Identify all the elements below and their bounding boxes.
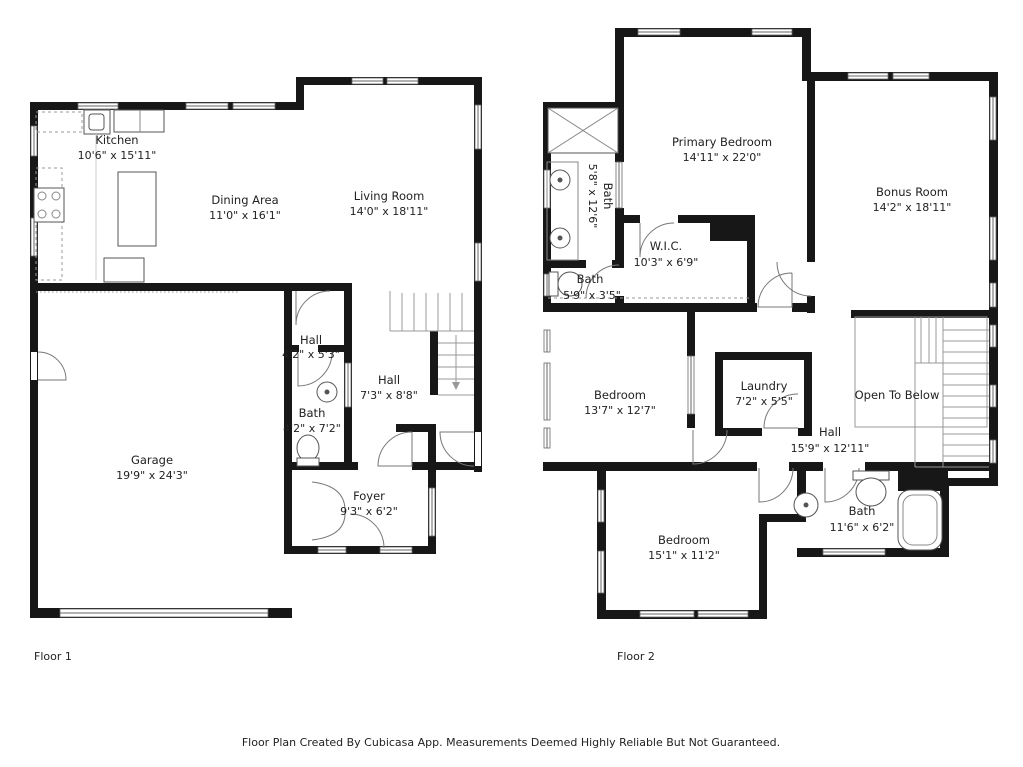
floor2-plan: Primary Bedroom 14'11" x 22'0" Bath 5'8"… [543, 28, 998, 619]
floor1-doors [38, 291, 474, 548]
room-label-hall1: Hall [378, 373, 400, 387]
room-label-hall2: Hall [819, 425, 841, 439]
room-dims-bath-small: 5'9" x 3'5" [563, 289, 621, 302]
kitchen-sink-icon [89, 114, 104, 130]
floor2-fixtures [547, 108, 942, 550]
room-label-bedroom2: Bedroom [658, 533, 710, 547]
room-dims-primary: 14'11" x 22'0" [683, 151, 762, 164]
toilet-icon [297, 435, 319, 461]
room-dims-foyer: 9'3" x 6'2" [340, 505, 398, 518]
floor1-label: Floor 1 [34, 650, 72, 663]
room-label-kitchen: Kitchen [95, 133, 138, 147]
room-dims-bath-hall: 11'6" x 6'2" [830, 521, 895, 534]
room-label-dining: Dining Area [211, 193, 278, 207]
room-label-open-below: Open To Below [855, 388, 940, 402]
room-label-bath-hall: Bath [849, 504, 876, 518]
room-label-bonus: Bonus Room [876, 185, 948, 199]
room-label-living: Living Room [354, 189, 425, 203]
room-dims-dining: 11'0" x 16'1" [209, 209, 281, 222]
room-label-garage: Garage [131, 453, 173, 467]
floor1-plan: Kitchen 10'6" x 15'11" Dining Area 11'0"… [30, 77, 482, 618]
floor-plan-canvas: Kitchen 10'6" x 15'11" Dining Area 11'0"… [0, 0, 1023, 767]
room-label-primary: Primary Bedroom [672, 135, 772, 149]
kitchen-island [118, 172, 156, 246]
room-label-bath-small: Bath [577, 272, 604, 286]
room-dims-bath-ensuite: 5'8" x 12'6" [586, 164, 599, 229]
toilet-icon [856, 478, 886, 506]
room-dims-hall1: 7'3" x 8'8" [360, 389, 418, 402]
room-dims-bedroom1: 13'7" x 12'7" [584, 404, 656, 417]
room-dims-wic: 10'3" x 6'9" [634, 256, 699, 269]
room-dims-bath1: 4'2" x 7'2" [283, 422, 341, 435]
room-dims-bonus: 14'2" x 18'11" [873, 201, 952, 214]
room-dims-hall2: 15'9" x 12'11" [791, 442, 870, 455]
room-label-bath-ensuite: Bath [601, 183, 615, 210]
floor-plan-page: Kitchen 10'6" x 15'11" Dining Area 11'0"… [0, 0, 1023, 767]
room-label-laundry: Laundry [741, 379, 788, 393]
floor2-label: Floor 2 [617, 650, 655, 663]
room-dims-living: 14'0" x 18'11" [350, 205, 429, 218]
room-dims-garage: 19'9" x 24'3" [116, 469, 188, 482]
room-label-foyer: Foyer [353, 489, 385, 503]
room-label-bath1: Bath [299, 406, 326, 420]
room-label-wic: W.I.C. [650, 239, 682, 253]
footer-disclaimer: Floor Plan Created By Cubicasa App. Meas… [242, 736, 780, 749]
room-dims-kitchen: 10'6" x 15'11" [78, 149, 157, 162]
room-label-hall-small: Hall [300, 333, 322, 347]
room-label-bedroom1: Bedroom [594, 388, 646, 402]
room-dims-laundry: 7'2" x 5'5" [735, 395, 793, 408]
room-dims-bedroom2: 15'1" x 11'2" [648, 549, 720, 562]
room-dims-hall-small: 4'2" x 5'3" [282, 348, 340, 361]
stove-icon [34, 188, 64, 222]
